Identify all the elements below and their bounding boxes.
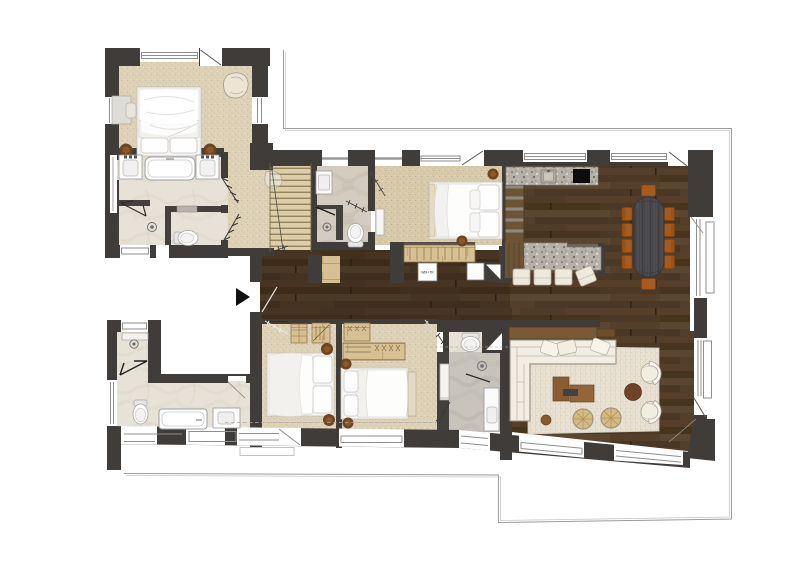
svg-text:WM+TR: WM+TR (421, 271, 434, 275)
